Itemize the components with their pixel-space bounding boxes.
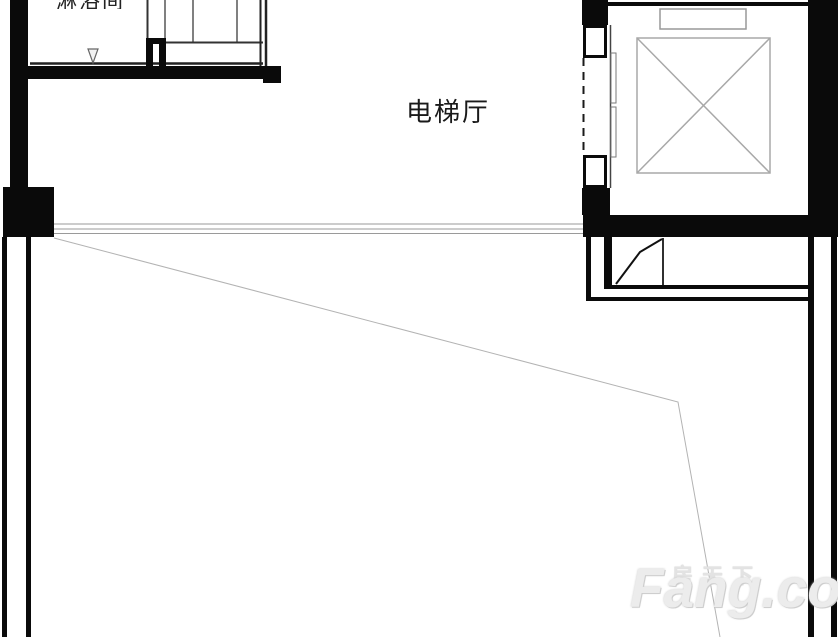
label-elevator-hall: 电梯厅 [406,92,490,129]
corridor-horizontal-line [586,297,813,301]
left-lower-wall-line [2,237,7,637]
rooms-bottom-wall-step [263,66,281,83]
shaft-left-wall-bottom-block [582,188,610,215]
door-frame-jamb [146,44,153,66]
corridor-inner-bar [604,237,612,288]
left-lower-wall-line [26,237,31,637]
rooms-bottom-wall [10,66,276,79]
right-lower-wall-line [808,237,814,637]
door-frame-jamb [159,44,166,66]
elevator-door-jamb-box [583,155,607,188]
left-exterior-wall [10,0,28,188]
triangle-drain-icon [88,49,98,63]
door-swing-line [616,239,662,284]
elevator-door-panel [611,107,616,157]
elevator-door-panel [611,53,616,103]
shaft-top-wall-line [607,2,810,6]
corridor-horizontal-line [604,285,811,289]
right-exterior-wall [808,0,838,215]
elevator-counterweight-icon [660,9,746,29]
label-shower-room-cropped: 淋浴间 [56,0,130,9]
shaft-left-wall-top-block [582,0,608,25]
left-wall-corner-block [3,187,54,237]
corridor-left-line [586,237,591,301]
shaft-bottom-wall-band [583,215,838,237]
floor-plan: 电梯厅 淋浴间 房天下 Fang.com [0,0,838,637]
right-edge-wall-line [831,237,837,637]
elevator-door-jamb-box [583,25,607,58]
